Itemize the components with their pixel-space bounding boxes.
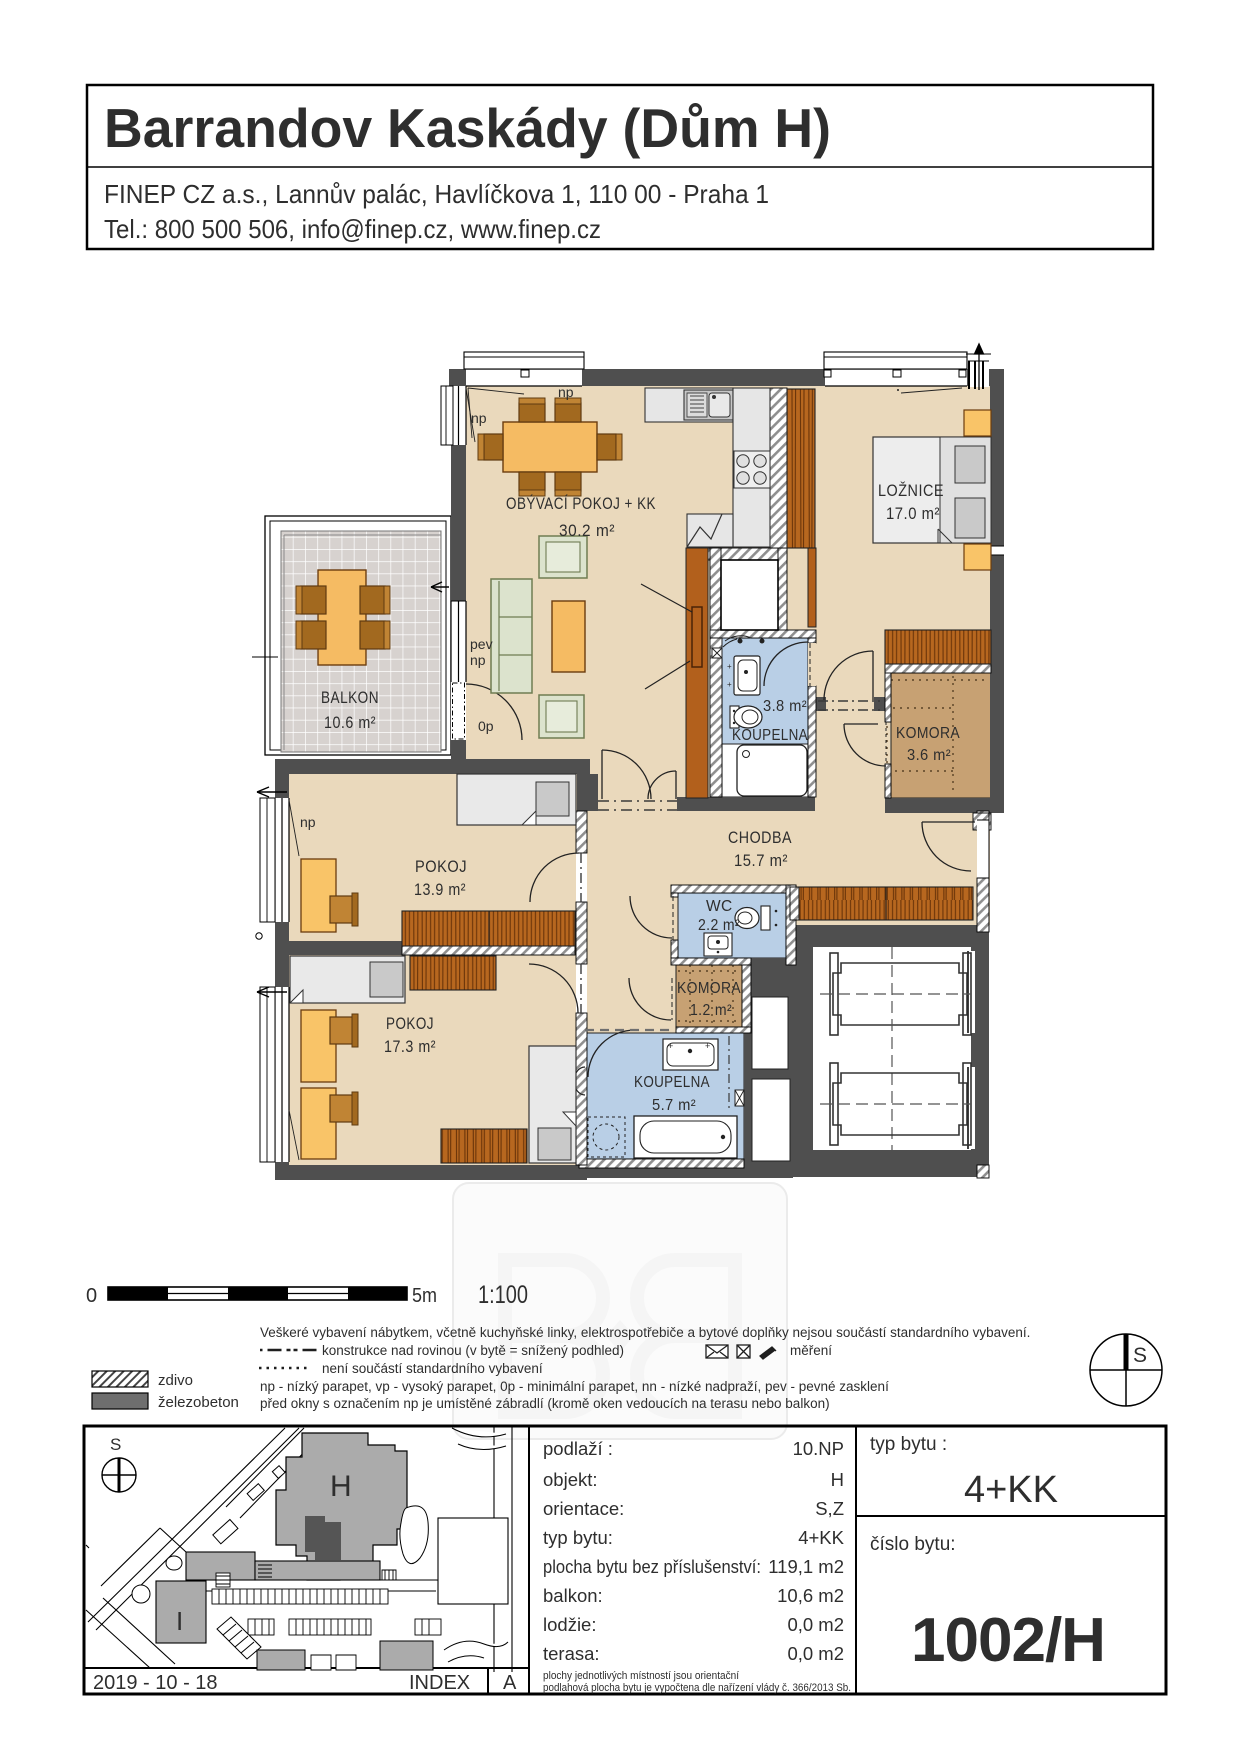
svg-text:np: np <box>300 814 316 830</box>
svg-text:17.0 m²: 17.0 m² <box>886 504 940 523</box>
svg-text:17.3 m²: 17.3 m² <box>384 1037 436 1056</box>
svg-text:3.6 m²: 3.6 m² <box>907 747 951 764</box>
svg-text:13.9 m²: 13.9 m² <box>414 880 466 899</box>
svg-text:5.7 m²: 5.7 m² <box>652 1097 696 1114</box>
svg-text:KOMORA: KOMORA <box>677 980 741 997</box>
svg-text:0p: 0p <box>478 718 494 734</box>
svg-text:10.NP: 10.NP <box>793 1438 844 1459</box>
svg-text:zdivo: zdivo <box>158 1372 193 1389</box>
svg-text:pev: pev <box>470 636 493 652</box>
svg-text:podlaží :: podlaží : <box>543 1438 613 1459</box>
svg-text:podlahová plocha bytu je vypoč: podlahová plocha bytu je vypočtena dle n… <box>543 1682 851 1694</box>
svg-text:objekt:: objekt: <box>543 1469 598 1490</box>
svg-text:+: + <box>668 1041 673 1051</box>
svg-text:POKOJ: POKOJ <box>386 1014 434 1033</box>
svg-text:Barrandov Kaskády (Dům H): Barrandov Kaskády (Dům H) <box>104 97 831 159</box>
svg-text:+: + <box>705 1041 710 1051</box>
svg-text:balkon:: balkon: <box>543 1585 603 1606</box>
svg-text:INDEX: INDEX <box>409 1672 470 1694</box>
svg-text:typ bytu:: typ bytu: <box>543 1527 613 1548</box>
svg-text:np: np <box>471 410 487 426</box>
svg-text:np: np <box>470 652 486 668</box>
svg-text:terasa:: terasa: <box>543 1643 600 1664</box>
svg-text:3.8 m²: 3.8 m² <box>763 698 807 715</box>
svg-text:S: S <box>1133 1344 1147 1367</box>
svg-text:orientace:: orientace: <box>543 1498 624 1519</box>
svg-text:10,6 m2: 10,6 m2 <box>777 1585 844 1606</box>
svg-text:15.7 m²: 15.7 m² <box>734 851 788 870</box>
svg-text:před okny s označením np je um: před okny s označením np je umístěné záb… <box>260 1396 830 1411</box>
svg-text:CHODBA: CHODBA <box>728 828 792 847</box>
svg-text:KOMORA: KOMORA <box>896 725 960 742</box>
svg-text:FINEP CZ a.s., Lannův palác, H: FINEP CZ a.s., Lannův palác, Havlíčkova … <box>104 179 769 209</box>
svg-text:H: H <box>831 1469 844 1490</box>
svg-text:BALKON: BALKON <box>321 688 379 707</box>
svg-text:typ bytu :: typ bytu : <box>870 1434 947 1455</box>
svg-text:POKOJ: POKOJ <box>415 857 467 876</box>
svg-text:KOUPELNA: KOUPELNA <box>634 1074 710 1091</box>
svg-text:2.2 m²: 2.2 m² <box>698 917 740 934</box>
svg-text:lodžie:: lodžie: <box>543 1614 596 1635</box>
svg-text:0,0 m2: 0,0 m2 <box>787 1614 844 1635</box>
svg-text:S,Z: S,Z <box>815 1498 844 1519</box>
svg-text:H: H <box>330 1470 352 1503</box>
svg-text:LOŽNICE: LOŽNICE <box>878 481 944 500</box>
svg-text:+: + <box>727 680 732 689</box>
svg-text:0,0 m2: 0,0 m2 <box>787 1643 844 1664</box>
svg-text:1002/H: 1002/H <box>911 1606 1105 1675</box>
svg-text:+: + <box>727 662 732 671</box>
svg-text:1:100: 1:100 <box>478 1281 528 1309</box>
svg-text:plochy jednotlivých místností: plochy jednotlivých místností jsou orien… <box>543 1670 739 1682</box>
svg-text:OBÝVACÍ POKOJ + KK: OBÝVACÍ POKOJ + KK <box>506 494 656 513</box>
svg-text:KOUPELNA: KOUPELNA <box>732 727 808 744</box>
svg-text:10.6 m²: 10.6 m² <box>324 713 376 732</box>
svg-text:není součástí standardního vyb: není součástí standardního vybavení <box>322 1361 543 1376</box>
svg-text:5m: 5m <box>412 1285 437 1307</box>
svg-text:np: np <box>558 384 574 400</box>
svg-text:železobeton: železobeton <box>158 1394 239 1411</box>
svg-text:4+KK: 4+KK <box>798 1527 844 1548</box>
svg-text:0: 0 <box>86 1285 97 1307</box>
svg-text:Tel.: 800 500 506, info@finep.: Tel.: 800 500 506, info@finep.cz, www.fi… <box>104 214 601 244</box>
svg-text:číslo bytu:: číslo bytu: <box>870 1534 956 1555</box>
svg-text:A: A <box>503 1672 517 1694</box>
svg-text:np - nízký parapet, vp - vysok: np - nízký parapet, vp - vysoký parapet,… <box>260 1379 889 1394</box>
svg-text:119,1 m2: 119,1 m2 <box>768 1556 844 1577</box>
svg-text:30.2 m²: 30.2 m² <box>559 521 615 540</box>
svg-text:4+KK: 4+KK <box>964 1469 1058 1511</box>
svg-text:WC: WC <box>706 898 733 915</box>
svg-text:I: I <box>176 1606 183 1636</box>
svg-text:plocha bytu bez příslušenství:: plocha bytu bez příslušenství: <box>543 1556 761 1577</box>
svg-text:1.2 m²: 1.2 m² <box>690 1002 732 1019</box>
svg-text:2019 - 10 - 18: 2019 - 10 - 18 <box>93 1672 218 1694</box>
svg-text:Veškeré vybavení nábytkem, vče: Veškeré vybavení nábytkem, včetně kuchyň… <box>260 1325 1030 1340</box>
svg-text:S: S <box>110 1435 121 1454</box>
svg-text:měření: měření <box>790 1343 832 1358</box>
svg-text:konstrukce nad rovinou (v bytě: konstrukce nad rovinou (v bytě = snížený… <box>322 1343 624 1358</box>
